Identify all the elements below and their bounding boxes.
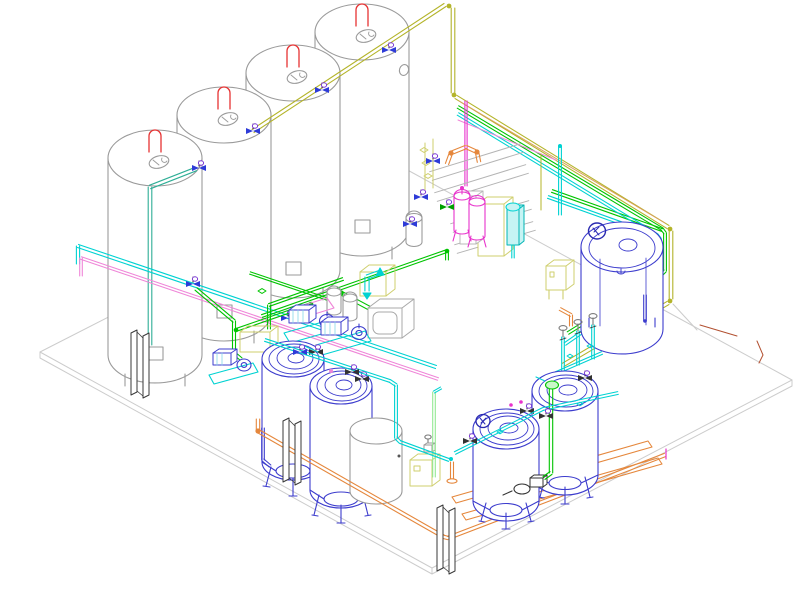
- open-top-tank-nozzle: [398, 455, 401, 458]
- transfer-pump-motor: [530, 475, 547, 487]
- orange-foot-flange: [447, 479, 457, 483]
- cyan-riser: [559, 146, 562, 215]
- tank-4-bottom-nozzle: [355, 220, 370, 233]
- plant-3d-view-container: 3D plant model - isometric piping view: [0, 0, 800, 600]
- day-tank-east: [581, 222, 663, 354]
- gray-valve-body: [424, 443, 435, 452]
- skid-valve-2: [414, 190, 428, 200]
- vertical-pump-cap: [506, 203, 520, 211]
- yellow-corner-upper: [668, 227, 673, 232]
- batch-tank-rear-green-cap: [546, 381, 559, 389]
- filter-vessel-1: [454, 192, 470, 234]
- filter-vessel-2: [469, 198, 485, 240]
- manifold-orange-elbow: [559, 308, 572, 326]
- tank-1-bottom-nozzle: [148, 347, 163, 360]
- gray-valve-handwheel: [425, 435, 431, 439]
- membrane-tube-1: [430, 144, 524, 181]
- control-box-legs: [549, 290, 563, 299]
- yellow-east-downcomer: [669, 231, 673, 299]
- cyan-riser-elbow: [558, 144, 562, 148]
- yellow-corner-lower: [668, 299, 673, 304]
- skid-valve-4: [440, 200, 454, 210]
- leader-line-2: [757, 341, 763, 363]
- day-tank-side-pipe-foot: [643, 319, 647, 323]
- pale-riser-elbow: [433, 387, 441, 393]
- batch-tank-magenta-nozzle-2: [519, 400, 523, 404]
- filter-top-nozzle: [460, 186, 464, 190]
- mix-tank-2-pink-nozzle: [329, 369, 333, 373]
- cad-3d-viewport[interactable]: [0, 0, 800, 600]
- manifold-riser-1: [562, 337, 565, 371]
- cyan-tee-elbow: [449, 457, 453, 461]
- yellow-elbow-top: [447, 4, 452, 9]
- orange-drop-foot: [451, 462, 454, 479]
- leader-line-1: [700, 325, 737, 336]
- tank-3-bottom-nozzle: [286, 262, 301, 275]
- yellow-elbow-mid: [452, 93, 457, 98]
- valve-handle-1: [420, 148, 428, 153]
- yellow-riser: [451, 8, 455, 93]
- batch-tank-magenta-nozzle-1: [509, 403, 513, 407]
